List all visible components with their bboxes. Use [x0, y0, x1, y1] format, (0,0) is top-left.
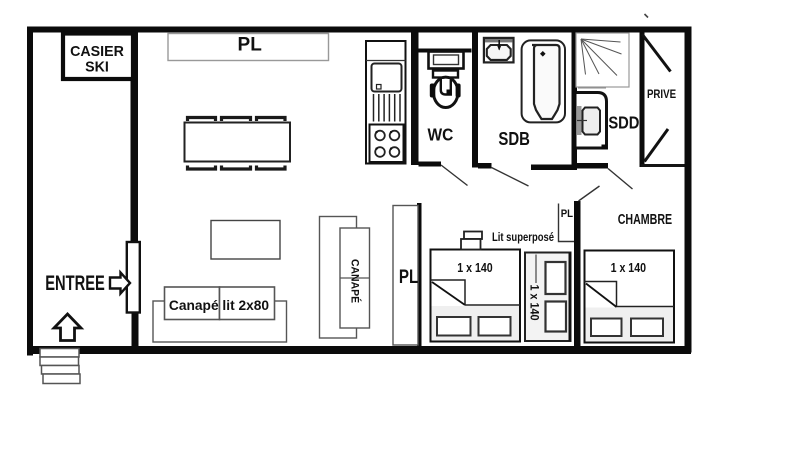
svg-text:PRIVE: PRIVE: [647, 88, 676, 101]
svg-text:1 x 140: 1 x 140: [527, 284, 540, 320]
svg-text:SDB: SDB: [498, 129, 530, 150]
svg-text:Canapé lit 2x80: Canapé lit 2x80: [169, 298, 270, 313]
svg-text:1 x 140: 1 x 140: [611, 261, 646, 275]
svg-text:SDD: SDD: [608, 113, 639, 133]
svg-text:PL: PL: [561, 209, 574, 221]
svg-text:ENTREE: ENTREE: [45, 271, 105, 294]
svg-text:PL: PL: [399, 265, 418, 287]
svg-text:CANAPÉ: CANAPÉ: [348, 259, 361, 303]
svg-text:WC: WC: [428, 124, 454, 144]
svg-text:CHAMBRE: CHAMBRE: [618, 210, 673, 227]
svg-text:Lit superposé: Lit superposé: [492, 231, 554, 244]
svg-text:SKI: SKI: [85, 59, 109, 75]
svg-text:1 x 140: 1 x 140: [457, 261, 492, 275]
svg-text:CASIER: CASIER: [70, 44, 124, 60]
svg-text:PL: PL: [238, 35, 263, 56]
